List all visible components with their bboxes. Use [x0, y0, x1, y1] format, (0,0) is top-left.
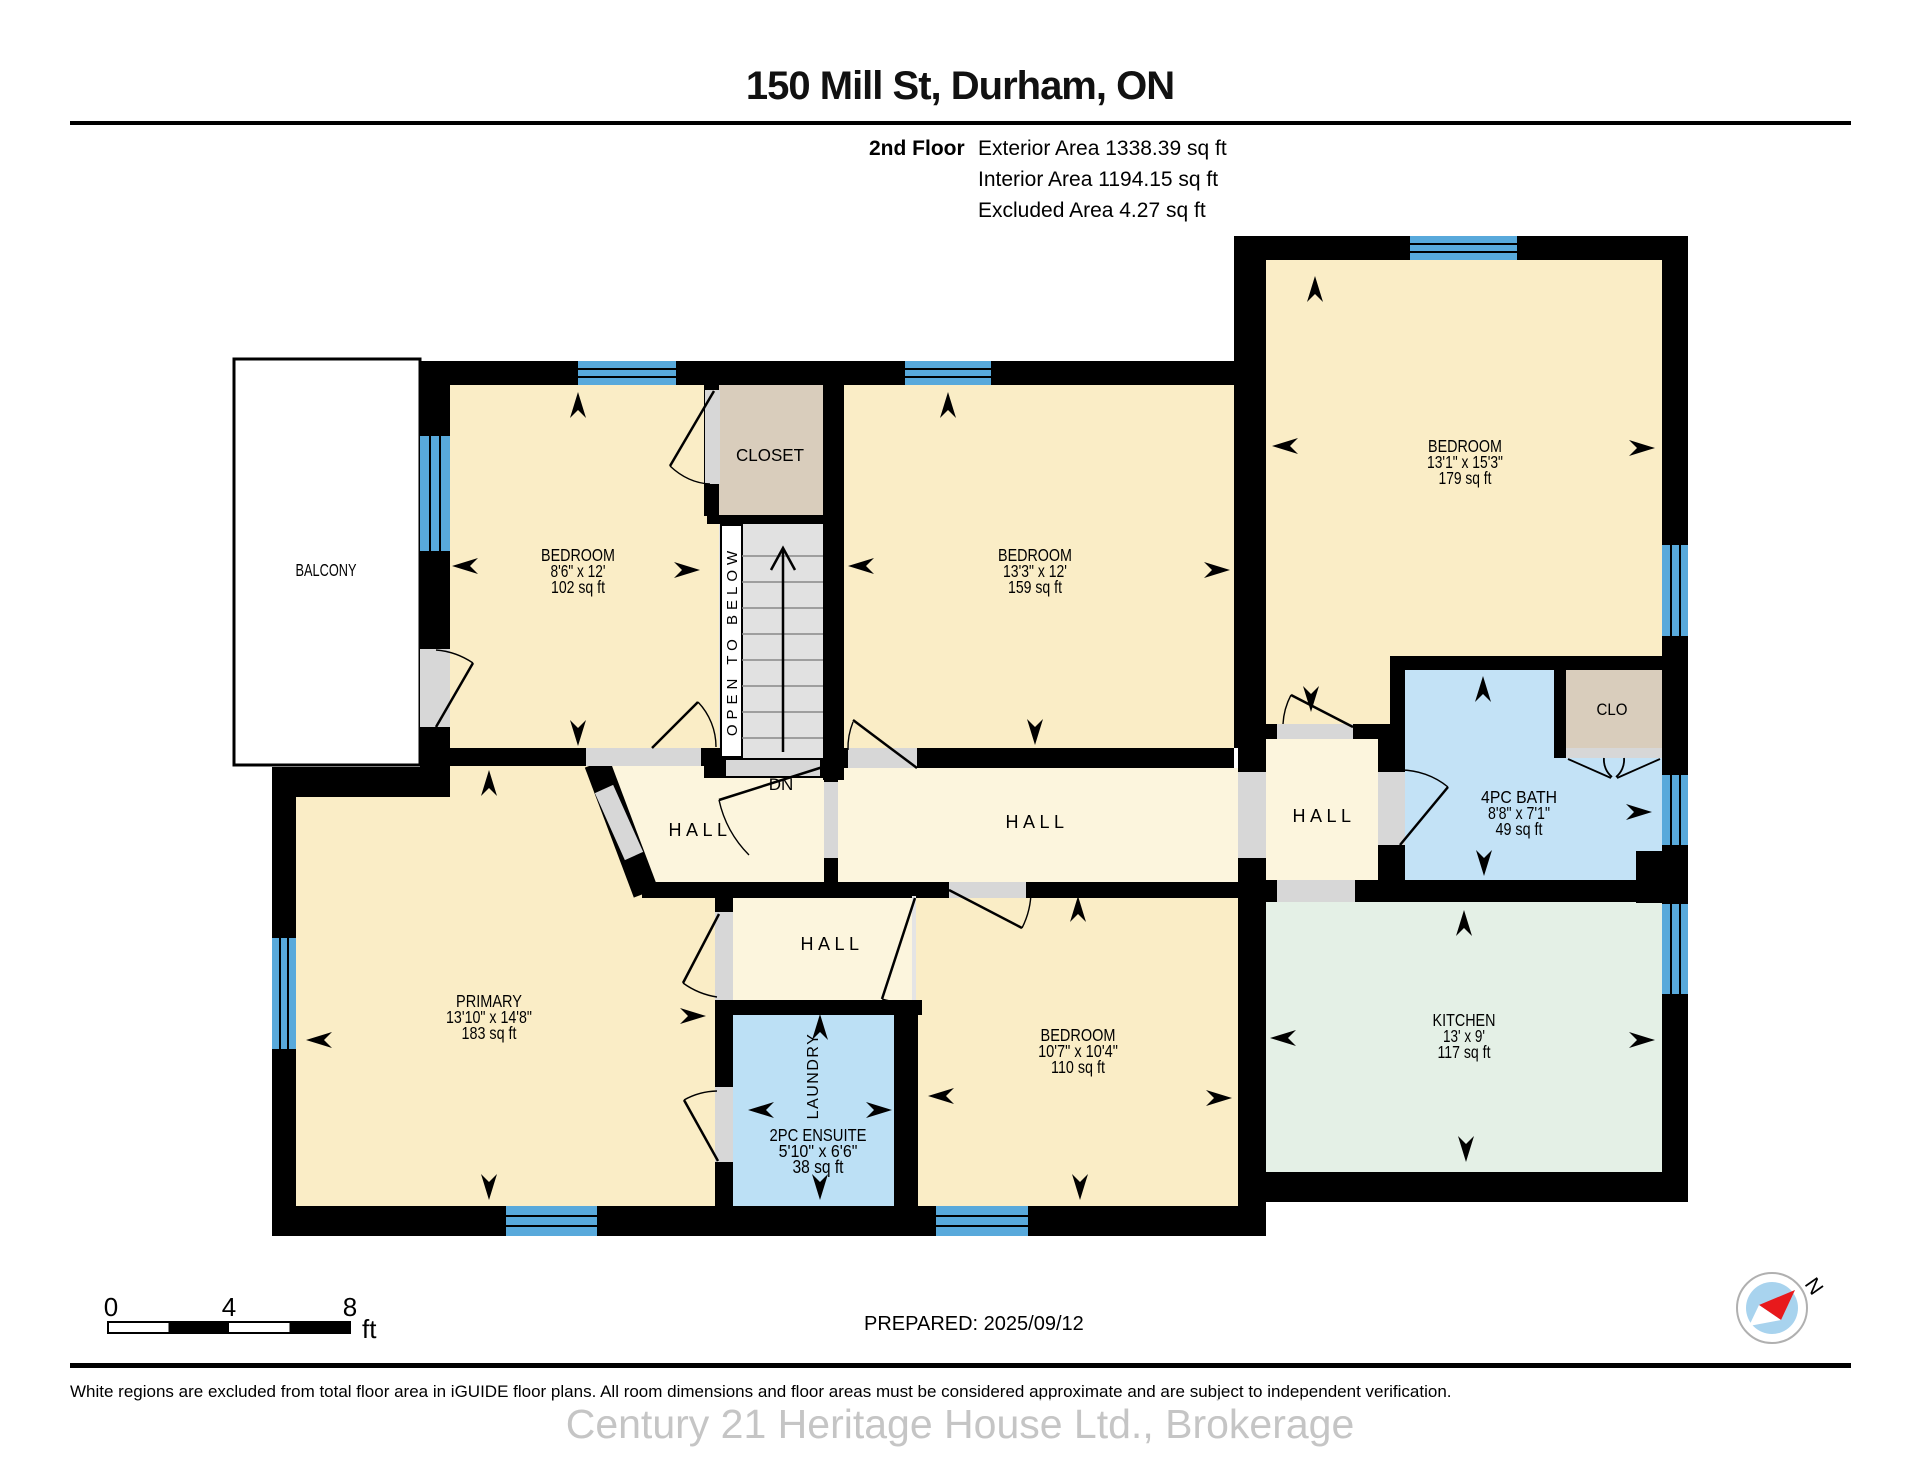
svg-text:183 sq ft: 183 sq ft — [461, 1024, 516, 1044]
svg-text:159 sq ft: 159 sq ft — [1008, 577, 1062, 597]
svg-text:LAUNDRY: LAUNDRY — [805, 1033, 822, 1120]
svg-text:4: 4 — [222, 1292, 236, 1322]
svg-text:179 sq ft: 179 sq ft — [1439, 468, 1492, 488]
svg-text:CLO: CLO — [1597, 700, 1628, 719]
svg-text:HALL: HALL — [668, 820, 731, 840]
svg-text:ft: ft — [362, 1314, 377, 1344]
svg-text:8: 8 — [343, 1292, 357, 1322]
svg-text:102 sq ft: 102 sq ft — [551, 577, 605, 597]
svg-text:49 sq ft: 49 sq ft — [1496, 820, 1543, 840]
svg-text:110 sq ft: 110 sq ft — [1051, 1058, 1105, 1078]
svg-text:DN: DN — [769, 775, 794, 794]
svg-text:0: 0 — [104, 1292, 118, 1322]
svg-text:38 sq ft: 38 sq ft — [793, 1157, 844, 1177]
svg-text:OPEN TO BELOW: OPEN TO BELOW — [724, 546, 741, 736]
svg-text:117 sq ft: 117 sq ft — [1438, 1042, 1491, 1062]
svg-text:HALL: HALL — [800, 934, 863, 954]
svg-text:BALCONY: BALCONY — [296, 561, 357, 581]
svg-text:HALL: HALL — [1005, 812, 1068, 832]
svg-text:HALL: HALL — [1292, 806, 1355, 826]
svg-text:CLOSET: CLOSET — [736, 445, 804, 466]
